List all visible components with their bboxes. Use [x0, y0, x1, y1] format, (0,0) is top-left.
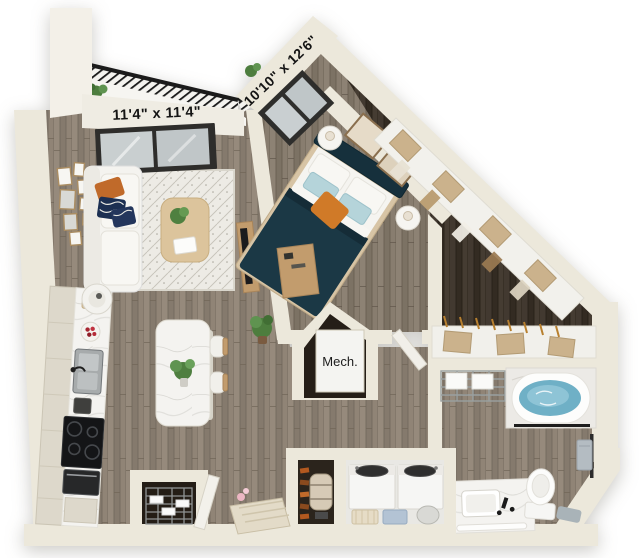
washer: [349, 465, 395, 509]
dresser: [277, 244, 319, 298]
floorplan-canvas: Mech.: [0, 0, 639, 558]
vanity: [449, 479, 535, 534]
coffee-maker: [73, 398, 91, 414]
dryer: [398, 465, 443, 509]
mech-label: Mech.: [322, 354, 357, 369]
sofa: [84, 166, 142, 292]
accent-chair: [82, 284, 112, 314]
island-stool-1: [210, 336, 228, 357]
nightstand-right: [396, 206, 420, 230]
kitchen-lower-cabinet: [64, 497, 97, 523]
laundry-area: [286, 448, 456, 536]
apartment-unit: Mech.: [14, 8, 620, 546]
bathtub: [506, 368, 596, 428]
table-tray: [173, 237, 197, 255]
nightstand-left: [318, 126, 342, 150]
oven: [63, 469, 100, 495]
cooktop: [61, 416, 104, 468]
island-stool-2: [210, 372, 228, 393]
towel: [577, 440, 592, 470]
coffee-table: [161, 198, 209, 262]
fruit-bowl: [80, 322, 100, 342]
floorplan-render: Mech.: [0, 0, 639, 558]
laundry-bag: [417, 506, 439, 524]
